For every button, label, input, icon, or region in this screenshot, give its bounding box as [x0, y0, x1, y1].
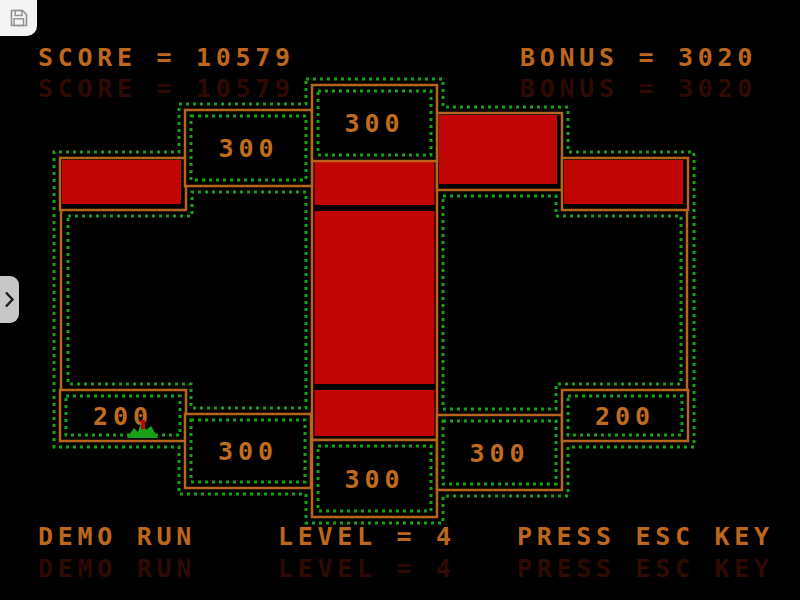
demo-run-label: DEMO RUN: [38, 524, 196, 550]
red-column-segment: [315, 390, 435, 436]
floppy-disk-icon: [9, 8, 29, 28]
demo-run-ghost: DEMO RUN: [38, 556, 196, 582]
score-display: SCORE = 10579: [38, 45, 295, 71]
score-box-value: 300: [218, 134, 278, 163]
red-column-segment: [315, 211, 435, 384]
chevron-right-icon: [0, 276, 19, 323]
score-box-value: 300: [469, 439, 529, 468]
score-box-value: 300: [218, 437, 278, 466]
level-ghost: LEVEL = 4: [278, 556, 456, 582]
save-button[interactable]: [0, 0, 37, 36]
boundary-trace: [68, 192, 306, 408]
red-block-fill: [439, 115, 557, 184]
red-block-fill: [62, 160, 181, 204]
boundary-trace: [443, 196, 681, 409]
score-box-value: 300: [344, 109, 404, 138]
score-box-value: 200: [595, 402, 655, 431]
sidebar-toggle-button[interactable]: [0, 276, 19, 323]
score-ghost: SCORE = 10579: [38, 76, 295, 102]
level-display: LEVEL = 4: [278, 524, 456, 550]
score-box-value: 300: [344, 465, 404, 494]
press-esc-hint: PRESS ESC KEY: [517, 524, 774, 550]
bonus-ghost: BONUS = 3020: [520, 76, 757, 102]
press-esc-ghost: PRESS ESC KEY: [517, 556, 774, 582]
bonus-display: BONUS = 3020: [520, 45, 757, 71]
red-column-segment: [315, 162, 435, 205]
game-window: 300300200300300300200 SCORE = 10579 BONU…: [0, 0, 800, 600]
red-block-fill: [564, 160, 683, 204]
player-sprite-dot: [141, 420, 145, 429]
